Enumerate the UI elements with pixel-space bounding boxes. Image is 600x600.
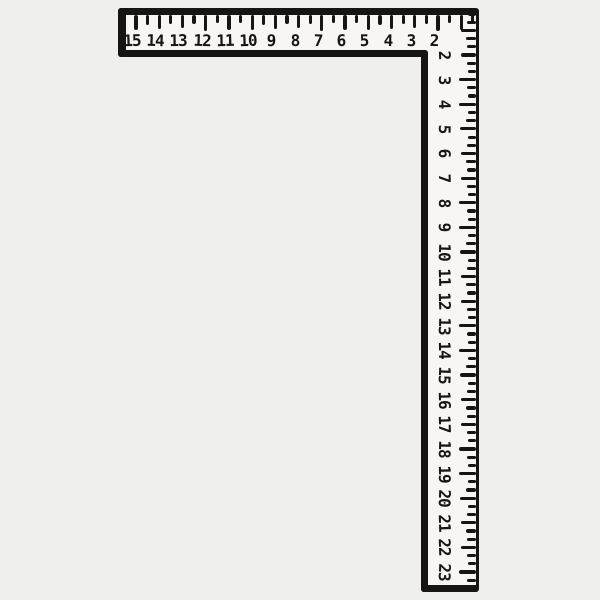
h-scale-number: 9 xyxy=(267,33,276,49)
v-scale-number: 17 xyxy=(436,415,453,433)
h-scale-number: 8 xyxy=(290,33,299,49)
v-scale-number: 11 xyxy=(436,268,452,286)
v-tick-long xyxy=(461,521,476,524)
h-scale-number: 13 xyxy=(170,33,188,49)
h-scale-number: 5 xyxy=(360,33,369,49)
framing-square-illustration: 1514131211109876543223456789101112131415… xyxy=(0,0,600,600)
h-tick-short xyxy=(262,15,265,25)
h-tick-short xyxy=(146,15,149,25)
v-scale-number: 15 xyxy=(436,366,453,384)
h-scale-number: 12 xyxy=(193,33,211,50)
h-tick-short xyxy=(192,15,195,24)
v-tick-short xyxy=(467,45,476,48)
h-tick-short xyxy=(402,15,405,25)
h-tick-long xyxy=(204,15,207,31)
h-tick-short xyxy=(355,15,358,23)
h-scale-number: 3 xyxy=(406,33,415,49)
h-tick-long xyxy=(436,15,439,31)
v-tick-short xyxy=(468,136,476,139)
h-tick-long xyxy=(460,15,463,31)
h-tick-long xyxy=(320,15,323,31)
v-tick-short xyxy=(467,209,476,212)
h-tick-short xyxy=(216,15,219,24)
v-tick-long xyxy=(459,472,476,475)
v-scale-number: 7 xyxy=(436,173,452,182)
v-tick-short xyxy=(466,488,476,491)
v-scale-number: 10 xyxy=(436,243,453,261)
v-tick-short xyxy=(468,111,477,114)
v-tick-short xyxy=(468,259,476,262)
h-tick-short xyxy=(239,15,242,23)
h-tick-short xyxy=(169,15,172,25)
v-tick-short xyxy=(467,267,477,270)
v-scale-number: 22 xyxy=(436,538,453,556)
v-tick-long xyxy=(459,201,476,204)
v-tick-short xyxy=(466,529,476,532)
v-tick-long xyxy=(461,53,476,56)
v-tick-long xyxy=(459,349,476,352)
v-tick-short xyxy=(468,464,476,467)
h-scale-number: 6 xyxy=(337,33,346,49)
v-scale-number: 20 xyxy=(436,489,453,507)
v-tick-short xyxy=(467,86,476,89)
v-tick-short xyxy=(466,283,476,286)
h-tick-short xyxy=(332,15,335,24)
v-tick-long xyxy=(459,226,476,229)
h-tick-long xyxy=(227,15,230,31)
v-scale-number: 12 xyxy=(436,292,453,310)
v-tick-short xyxy=(468,70,477,73)
v-tick-long xyxy=(459,570,476,573)
v-tick-long xyxy=(461,177,476,180)
h-tick-long xyxy=(181,15,184,29)
v-tick-short xyxy=(468,439,477,442)
h-tick-long xyxy=(158,15,161,29)
h-tick-long xyxy=(274,15,277,29)
v-scale-number: 4 xyxy=(436,100,452,109)
v-scale-number: 21 xyxy=(436,514,452,532)
v-tick-short xyxy=(468,316,477,319)
v-tick-short xyxy=(467,62,477,65)
v-tick-short xyxy=(467,538,476,541)
v-tick-short xyxy=(467,456,476,459)
v-tick-long xyxy=(461,423,476,426)
v-tick-short xyxy=(468,193,477,196)
v-tick-short xyxy=(468,218,476,221)
h-tick-long xyxy=(343,15,346,31)
h-tick-long xyxy=(251,15,254,30)
v-tick-short xyxy=(467,415,476,418)
v-tick-short xyxy=(466,160,476,163)
v-scale-number: 5 xyxy=(436,124,452,133)
h-tick-short xyxy=(448,15,451,24)
v-scale-number: 3 xyxy=(436,75,452,84)
v-tick-long xyxy=(461,275,476,278)
v-scale-number: 14 xyxy=(436,342,452,360)
v-tick-long xyxy=(461,300,476,303)
v-tick-short xyxy=(468,94,476,97)
h-tick-long xyxy=(297,15,300,29)
v-tick-short xyxy=(466,119,476,122)
v-tick-short xyxy=(466,37,476,40)
v-tick-short xyxy=(467,513,477,516)
v-tick-long xyxy=(460,127,476,130)
v-tick-long xyxy=(460,497,476,500)
v-tick-long xyxy=(461,152,476,155)
v-scale-number: 9 xyxy=(436,223,452,232)
v-tick-long xyxy=(459,78,476,81)
h-scale-number: 15 xyxy=(123,33,141,50)
v-tick-short xyxy=(467,144,477,147)
v-tick-long xyxy=(459,103,476,106)
h-tick-long xyxy=(134,15,137,30)
h-scale-number: 7 xyxy=(313,33,322,49)
h-scale-number: 14 xyxy=(146,33,164,49)
h-tick-long xyxy=(413,15,416,29)
v-tick-short xyxy=(467,185,477,188)
h-scale-number: 10 xyxy=(239,33,257,50)
v-tick-short xyxy=(466,406,476,409)
v-scale-number: 19 xyxy=(436,465,452,483)
v-tick-short xyxy=(468,341,476,344)
h-scale-number: 11 xyxy=(216,33,234,49)
v-tick-long xyxy=(461,398,476,401)
v-tick-long xyxy=(460,373,476,376)
v-tick-short xyxy=(468,505,476,508)
v-tick-long xyxy=(461,29,476,32)
v-scale-number: 16 xyxy=(436,391,452,409)
v-tick-short xyxy=(467,390,477,393)
h-tick-short xyxy=(285,15,288,25)
h-tick-long xyxy=(367,15,370,30)
h-tick-short xyxy=(425,15,428,24)
v-scale-number: 18 xyxy=(436,440,452,458)
v-tick-short xyxy=(467,431,477,434)
h-tick-short xyxy=(123,15,126,23)
v-tick-short xyxy=(467,291,476,294)
v-tick-short xyxy=(467,554,477,557)
h-tick-short xyxy=(309,15,312,24)
v-tick-long xyxy=(461,546,476,549)
v-tick-short xyxy=(468,382,476,385)
v-tick-short xyxy=(468,562,477,565)
v-tick-long xyxy=(460,250,476,253)
v-tick-short xyxy=(467,168,476,171)
v-tick-short xyxy=(466,242,476,245)
v-tick-short xyxy=(468,480,477,483)
v-tick-short xyxy=(468,12,476,15)
v-scale-number: 13 xyxy=(436,317,452,335)
v-tick-short xyxy=(467,579,476,582)
v-tick-short xyxy=(468,234,477,237)
v-tick-short xyxy=(468,357,477,360)
v-tick-long xyxy=(459,324,476,327)
v-scale-number: 6 xyxy=(436,149,452,158)
v-tick-short xyxy=(466,365,476,368)
h-tick-short xyxy=(378,15,381,25)
h-scale-number: 2 xyxy=(429,33,438,49)
v-scale-number: 8 xyxy=(436,198,452,207)
h-scale-number: 4 xyxy=(383,33,392,49)
v-scale-number: 23 xyxy=(436,563,452,581)
h-tick-long xyxy=(390,15,393,29)
v-tick-short xyxy=(467,308,477,311)
v-tick-short xyxy=(467,21,477,24)
v-scale-number: 2 xyxy=(436,50,452,59)
v-tick-long xyxy=(459,447,476,450)
v-tick-short xyxy=(467,332,476,335)
